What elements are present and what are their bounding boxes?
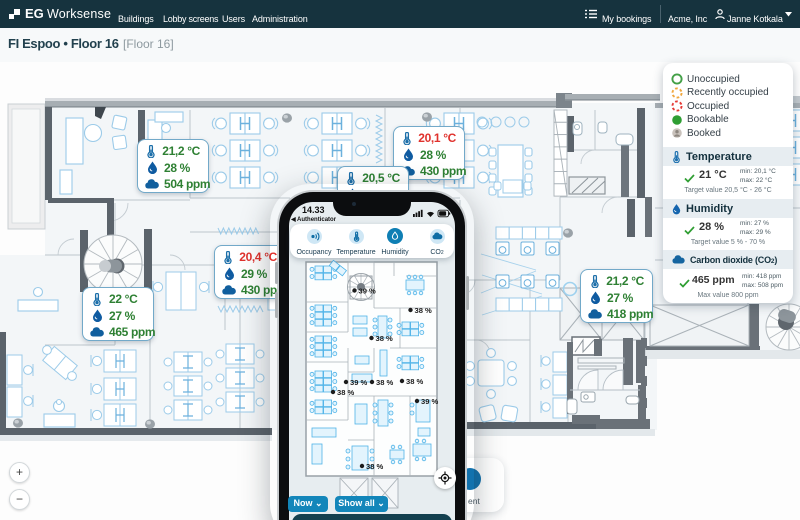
svg-text:39 %: 39 % <box>350 378 368 387</box>
svg-text:38 %: 38 % <box>337 388 355 397</box>
svg-text:39 %: 39 % <box>421 397 439 406</box>
svg-text:38 %: 38 % <box>415 306 433 315</box>
svg-text:38 %: 38 % <box>376 378 394 387</box>
svg-text:38 %: 38 % <box>376 334 394 343</box>
svg-text:38 %: 38 % <box>406 377 424 386</box>
svg-text:39 %: 39 % <box>359 287 377 296</box>
svg-text:38 %: 38 % <box>366 462 384 471</box>
